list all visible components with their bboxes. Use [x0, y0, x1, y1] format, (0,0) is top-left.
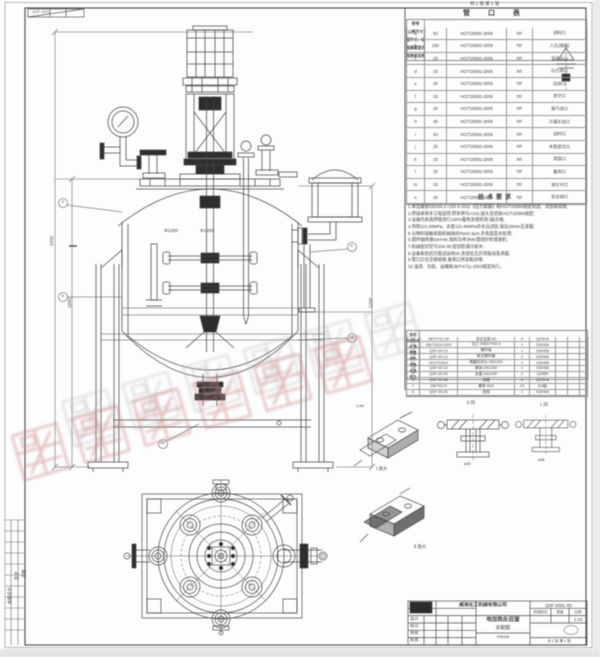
table-cell: 4 [515, 337, 530, 342]
vessel-body [118, 179, 302, 378]
table-cell: 25 [425, 91, 447, 103]
nozzle-table-row: b150 HG/T20592-2009RF 人孔(视镜) [407, 40, 586, 53]
table-cell: 12 [407, 354, 420, 359]
table-cell: HG/T20592-2009 [447, 28, 507, 40]
table-cell: HG/T20592-2009 [447, 91, 507, 103]
table-cell: 出料口 [533, 128, 586, 140]
table-cell: 50 [425, 28, 447, 40]
table-cell: 1 [515, 390, 530, 395]
balloon-label: 5 [58, 294, 67, 299]
table-cell: d [407, 65, 425, 77]
bom-table-row: 6QSF-00-06 底阀1 S30408 [407, 390, 587, 396]
table-cell: 椭圆形封头 DN1200 [458, 360, 515, 365]
tech-requirement-line: 5.与物料接触表面机械抛光Ra≤0.4μm,外表面亚光处理; [408, 231, 585, 236]
table-cell: RF [507, 91, 533, 103]
table-cell: S30408 [530, 366, 556, 371]
drawing-number: QSF-500L-00 [531, 603, 586, 608]
table-cell: 测温口 [533, 154, 586, 166]
side-condenser [292, 170, 362, 312]
table-cell: 8 [407, 378, 420, 383]
table-cell: 4 [515, 378, 530, 383]
table-cell: JB/T4712-92 [420, 337, 458, 342]
scale-value: 1:10 [569, 617, 587, 622]
table-cell: i [407, 128, 425, 140]
margin-label: 底图总号 [8, 587, 13, 604]
table-cell: k [407, 154, 425, 166]
table-cell: 14 [407, 342, 420, 347]
bom-table: 15JB/T4712-92 耳式支座 B34 Q235-B 14GB/T9119… [406, 337, 588, 397]
plan-view [124, 480, 327, 635]
tech-requirements-title: 技术要求 [408, 195, 584, 202]
table-cell: GB/T6170 [420, 384, 458, 389]
table-cell: RF [507, 40, 533, 52]
table-cell: GB/T9119-2010 [420, 342, 458, 347]
table-cell: e [407, 78, 425, 90]
table-cell [580, 348, 587, 353]
tech-requirement-line: 10.油漆、包装、运输按JB/T4711-2003规定执行。 [408, 264, 585, 269]
table-cell [580, 378, 587, 383]
table-cell: Q235-B [530, 337, 556, 342]
table-cell: S30408 [530, 360, 556, 365]
table-cell [580, 384, 587, 389]
table-cell [556, 384, 568, 389]
table-cell: RF [507, 154, 533, 166]
margin-strip-table [5, 520, 25, 645]
table-cell: QSF-00-10 [420, 366, 458, 371]
drawing-title-line2: 装配图 [477, 626, 529, 632]
table-cell: g [407, 103, 425, 115]
table-cell: 桨式搅拌器 [458, 354, 515, 359]
table-cell: S30408 [530, 390, 556, 395]
detail-note: 2-ø9 [356, 404, 364, 408]
margin-label: 签字 [15, 572, 20, 580]
table-cell: 法兰 DN50 PN1.6 [458, 342, 515, 347]
table-cell: 2 [515, 354, 530, 359]
tech-requirement-line: 9.管口方位见俯视图,备用口用盲板封堵; [408, 257, 585, 262]
nozzle-table-row: m25 HG/T20592-2009RF 液位计口 [407, 179, 586, 192]
dim-overall-height: 2450 [49, 236, 54, 246]
dim-right-height: 1200 [368, 298, 373, 308]
detail-caption-2: Ⅱ 放大 [414, 544, 426, 549]
company-logo [410, 602, 432, 613]
table-cell [556, 366, 568, 371]
table-cell: HG/T20592-2009 [447, 128, 507, 140]
detail-caption-1: Ⅰ 放大 [376, 466, 387, 471]
watermark [12, 336, 372, 480]
screenshot-root: 共 1 张 第 1 张 QSF-500L 管 口 表 符号公称尺寸连接尺寸、标准… [0, 0, 600, 657]
tech-requirement-line: 8.设备安装后空载试运转2h,各部位无异常振动及渗漏; [408, 251, 585, 256]
table-cell [556, 390, 568, 395]
detail-caption-b: b 向 [467, 400, 475, 405]
table-cell [580, 354, 587, 359]
table-cell: 24 [515, 384, 530, 389]
table-cell [568, 378, 580, 383]
table-cell: 1 [515, 366, 530, 371]
sheet-count-note: 共 1 张 第 1 张 [470, 1, 499, 6]
table-cell [568, 366, 580, 371]
table-cell: m [407, 179, 425, 191]
detail-iso-2 [360, 488, 424, 542]
table-cell: 9 [407, 372, 420, 377]
detail-caption-c: c 向 [540, 402, 548, 407]
table-cell [568, 348, 580, 353]
nozzle-table-row: c25 HG/T20592-2009RF 温度计口 [407, 53, 586, 66]
table-cell: 10 [407, 366, 420, 371]
table-cell: a [407, 28, 425, 40]
table-cell: HG/T20592-2009 [447, 40, 507, 52]
detail-section-c [516, 415, 576, 454]
table-cell [556, 337, 568, 342]
table-cell: QSF-00-13 [420, 348, 458, 353]
table-cell: RF [507, 128, 533, 140]
dim-jacket-diameter: Φ1300 [200, 228, 214, 233]
table-cell: 螺母 M16 [458, 384, 515, 389]
table-cell [568, 337, 580, 342]
watermark-echo [62, 302, 422, 446]
balloon-label: 3 [58, 200, 67, 205]
table-cell: 150 [425, 40, 447, 52]
table-cell: 夹套 DN1300 [458, 372, 515, 377]
table-cell [556, 378, 568, 383]
table-cell: RF [507, 141, 533, 153]
table-cell: 13 [407, 348, 420, 353]
tech-requirement-line: 7.机械密封型号204-35,密封腔通冷却水; [408, 244, 585, 249]
table-cell [580, 342, 587, 347]
table-cell: 25 [425, 65, 447, 77]
tech-requirements-list: 1.本设备按GB150.1~150.4-2011《压力容器》和HG/T20569… [408, 204, 585, 271]
table-cell: HG/T20592-2009 [447, 141, 507, 153]
table-cell: 人孔(视镜) [533, 40, 586, 52]
table-cell: l [407, 166, 425, 178]
nozzle-table-row: g40 HG/T20592-2009RF 蒸汽进口 [407, 103, 586, 116]
table-cell [580, 390, 587, 395]
table-cell [580, 366, 587, 371]
detail-section-b [438, 414, 509, 460]
nozzle-table-row: a50 HG/T20592-2009RF 进料口 [407, 28, 586, 41]
table-cell: 11 [407, 360, 420, 365]
table-cell: 冷凝水出口 [533, 116, 586, 128]
table-cell [568, 360, 580, 365]
table-cell [580, 372, 587, 377]
table-cell: HG/T21514 [420, 360, 458, 365]
table-cell: 15 [407, 337, 420, 342]
gear-reducer [180, 78, 240, 179]
mass-label: 质量 [551, 610, 569, 614]
table-cell: QSF-00-12 [420, 354, 458, 359]
table-cell: j [407, 141, 425, 153]
table-cell: 液位计口 [533, 179, 586, 191]
dim-vessel-height: 1850 [67, 298, 72, 308]
table-cell: h [407, 116, 425, 128]
agitator [146, 96, 257, 352]
table-cell [556, 360, 568, 365]
balloon-label: 9 [347, 244, 356, 249]
corner-code: QSF-500L [32, 10, 50, 15]
front-view [52, 26, 375, 472]
tech-requirement-line: 1.本设备按GB150.1~150.4-2011《压力容器》和HG/T20569… [408, 204, 585, 209]
table-cell: S30408 [530, 354, 556, 359]
table-cell: RF [507, 28, 533, 40]
table-cell: RF [507, 65, 533, 77]
pressure-gauge [100, 107, 141, 169]
scale-label: 比例 [569, 610, 587, 614]
table-cell: c [407, 53, 425, 65]
nozzle-table-row: l32 HG/T20592-2009RF 备用口 [407, 166, 586, 179]
tb-role-design: 设计 [410, 617, 418, 622]
nozzle-table-row: i50 HG/T20592-2009RF 出料口 [407, 128, 586, 141]
table-cell: 25 [425, 141, 447, 153]
table-cell: 25 [425, 179, 447, 191]
table-cell: HG/T20592-2009 [447, 65, 507, 77]
nozzle-table-row: h40 HG/T20592-2009RF 冷凝水出口 [407, 116, 586, 129]
drawing-sheet: 共 1 张 第 1 张 QSF-500L 管 口 表 符号公称尺寸连接尺寸、标准… [0, 0, 600, 657]
company-name: 威海化工机械有限公司 [436, 603, 530, 609]
tech-requirement-line: 2.焊接采用手工电弧焊,焊条牌号A102,接头型式按HG/T20583规定; [408, 211, 585, 216]
page-edge-bottom [0, 649, 600, 657]
sheets-note: 共 1 张 第 1 张 [531, 639, 587, 643]
nozzle-table: a50 HG/T20592-2009RF 进料口 b150 HG/T20592-… [406, 28, 587, 205]
nozzle-table-row: k25 HG/T20592-2009RF 测温口 [407, 154, 586, 167]
nozzle-table-row: e40 HG/T20592-2009RF 回流口 [407, 78, 586, 91]
table-cell: 6 [407, 390, 420, 395]
table-cell: 放空口 [533, 91, 586, 103]
tech-requirement-line: 4.内筒以0.30MPa、夹套以0.45MPa作水压试验,保压30min无渗漏; [408, 224, 585, 229]
table-cell: 40 [425, 78, 447, 90]
table-cell: 支腿 [458, 378, 515, 383]
table-cell: HG/T20592-2009 [447, 103, 507, 115]
tech-requirement-line: 6.搅拌轴转速63r/min,电机功率3kW,摆线针轮减速机; [408, 237, 585, 242]
tb-role-review: 审核 [410, 631, 418, 636]
table-cell: f [407, 91, 425, 103]
table-cell: 夹套放空口 [533, 141, 586, 153]
table-cell: 回流口 [533, 78, 586, 90]
table-cell: 蒸汽进口 [533, 103, 586, 115]
balloon-label: 12 [347, 335, 356, 340]
tech-requirement-line: 3.设备内表面焊缝进行100%着色渗透检测,Ⅰ级合格; [408, 217, 585, 222]
table-cell: HG/T20592-2009 [447, 116, 507, 128]
table-cell [556, 354, 568, 359]
tb-role-check: 校对 [410, 624, 418, 629]
table-cell [568, 372, 580, 377]
balloon-label: 15 [158, 441, 167, 446]
table-cell: HG/T20592-2009 [447, 154, 507, 166]
table-cell: HG/T20592-2009 [447, 166, 507, 178]
table-cell: HG/T20592-2009 [447, 78, 507, 90]
approval-stamp [564, 626, 578, 635]
table-cell [568, 354, 580, 359]
table-cell: 搅拌轴 [458, 348, 515, 353]
page-edge-right [593, 0, 600, 657]
detail-note: ø36 [538, 458, 545, 462]
table-cell: 进料口 [533, 28, 586, 40]
table-cell: RF [507, 78, 533, 90]
motor [187, 26, 233, 77]
table-cell: 32 [425, 166, 447, 178]
table-cell: QSF-00-09 [420, 372, 458, 377]
stage-label: 阶段标记 [530, 610, 551, 614]
table-cell: RF [507, 166, 533, 178]
table-cell: S30408 [530, 348, 556, 353]
table-cell [556, 372, 568, 377]
table-cell: Q345R [530, 372, 556, 377]
drawing-title-line1: 电加热反应釜 [477, 617, 529, 623]
table-cell: 压力表口 [533, 65, 586, 77]
table-cell: 1 [515, 348, 530, 353]
table-cell: 1 [515, 372, 530, 377]
detail-iso-1 [354, 412, 418, 466]
table-cell: Q235-B [530, 378, 556, 383]
table-cell [580, 337, 587, 342]
table-cell [556, 348, 568, 353]
nozzle-table-row: f25 HG/T20592-2009RF 放空口 [407, 91, 586, 104]
table-cell: 1 [515, 342, 530, 347]
nozzle-table-title: 管 口 表 [406, 10, 585, 18]
table-cell: 备用口 [533, 166, 586, 178]
table-cell: S30408 [530, 342, 556, 347]
table-cell: 底阀 [458, 390, 515, 395]
table-cell: RF [507, 179, 533, 191]
table-cell: 50 [425, 128, 447, 140]
table-cell: 7 [407, 384, 420, 389]
table-cell: 温度计口 [533, 53, 586, 65]
table-cell: 25 [425, 154, 447, 166]
table-cell [568, 390, 580, 395]
table-cell: HG/T20592-2009 [447, 179, 507, 191]
margin-label: 日期 [22, 570, 27, 578]
table-cell: RF [507, 103, 533, 115]
dim-inner-diameter: Φ1200 [164, 228, 178, 233]
table-cell: QSF-00-06 [420, 390, 458, 395]
table-cell: 筒体 DN1200 [458, 366, 515, 371]
table-cell [568, 384, 580, 389]
tb-role-approve: 批准 [410, 638, 418, 643]
table-cell: 1 [515, 360, 530, 365]
nozzle-table-row: j25 HG/T20592-2009RF 夹套放空口 [407, 141, 586, 154]
table-cell: HG/T20592-2009 [447, 53, 507, 65]
table-cell: 耳式支座 B3 [458, 337, 515, 342]
table-cell [568, 342, 580, 347]
table-cell: 25 [425, 53, 447, 65]
table-cell [556, 342, 568, 347]
detail-note: ø45 [464, 462, 471, 466]
table-cell: 40 [425, 116, 447, 128]
table-cell: RF [507, 116, 533, 128]
table-cell: 8.8级 [530, 384, 556, 389]
table-cell: b [407, 40, 425, 52]
table-cell: QSF-00-08 [420, 378, 458, 383]
table-cell: 40 [425, 103, 447, 115]
table-cell: RF [507, 53, 533, 65]
nozzle-table-row: d25 HG/T20592-2009RF 压力表口 [407, 65, 586, 78]
table-cell [580, 360, 587, 365]
material-spec: S30408 [477, 635, 529, 639]
